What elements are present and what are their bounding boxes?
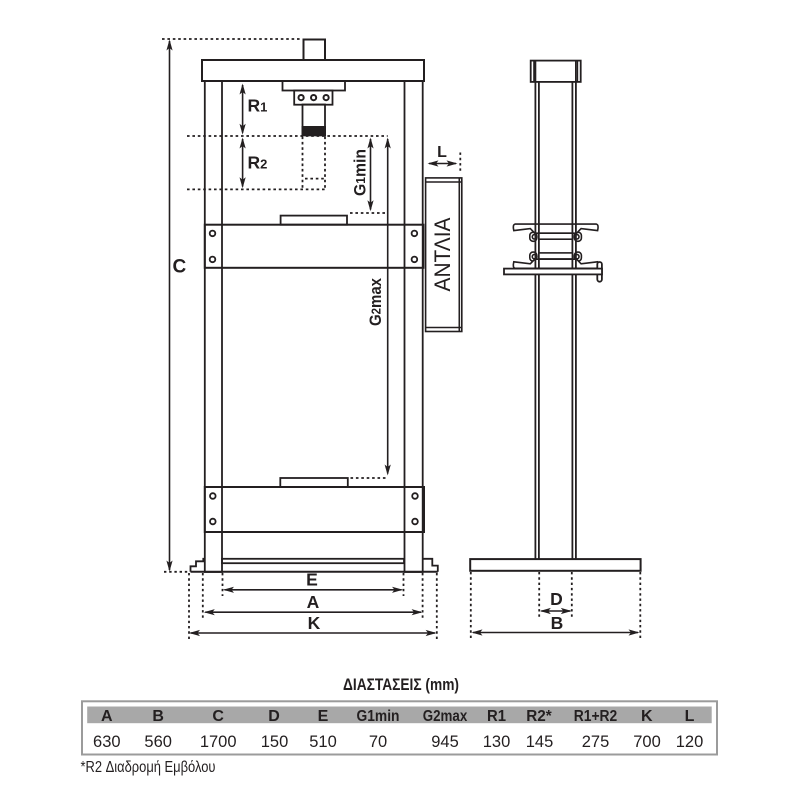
svg-text:B: B: [551, 613, 564, 633]
svg-text:K: K: [641, 708, 653, 725]
svg-text:ΑΝΤΛΙΑ: ΑΝΤΛΙΑ: [430, 217, 455, 291]
svg-text:E: E: [318, 708, 329, 725]
svg-text:R1: R1: [248, 96, 268, 116]
svg-text:G1min: G1min: [351, 149, 370, 196]
svg-text:1700: 1700: [200, 733, 237, 751]
svg-text:275: 275: [582, 733, 610, 751]
svg-text:C: C: [212, 708, 224, 725]
svg-text:630: 630: [93, 733, 121, 751]
svg-text:150: 150: [261, 733, 289, 751]
svg-text:E: E: [306, 570, 318, 590]
svg-text:R2: R2: [248, 153, 268, 173]
svg-text:*R2 Διαδρομή Εμβόλου: *R2 Διαδρομή Εμβόλου: [81, 759, 216, 776]
svg-text:R2*: R2*: [526, 708, 552, 725]
svg-text:K: K: [308, 613, 321, 633]
svg-text:945: 945: [431, 733, 459, 751]
svg-text:70: 70: [369, 733, 387, 751]
svg-text:D: D: [268, 708, 280, 725]
svg-text:560: 560: [144, 733, 172, 751]
svg-text:130: 130: [483, 733, 511, 751]
svg-text:120: 120: [676, 733, 704, 751]
svg-text:G2max: G2max: [423, 708, 468, 725]
svg-text:510: 510: [309, 733, 337, 751]
svg-text:D: D: [550, 589, 563, 609]
svg-text:B: B: [152, 708, 164, 725]
svg-text:A: A: [307, 592, 320, 612]
svg-text:L: L: [685, 708, 695, 725]
svg-text:G1min: G1min: [357, 708, 400, 725]
svg-text:C: C: [173, 257, 187, 278]
svg-text:R1+R2: R1+R2: [574, 708, 618, 725]
svg-text:ΔΙΑΣΤΑΣΕΙΣ (mm): ΔΙΑΣΤΑΣΕΙΣ (mm): [343, 675, 459, 694]
svg-text:A: A: [101, 708, 113, 725]
svg-text:700: 700: [633, 733, 661, 751]
svg-text:G2max: G2max: [366, 278, 385, 326]
svg-text:145: 145: [526, 733, 554, 751]
svg-text:L: L: [437, 144, 447, 161]
svg-text:R1: R1: [487, 708, 506, 725]
